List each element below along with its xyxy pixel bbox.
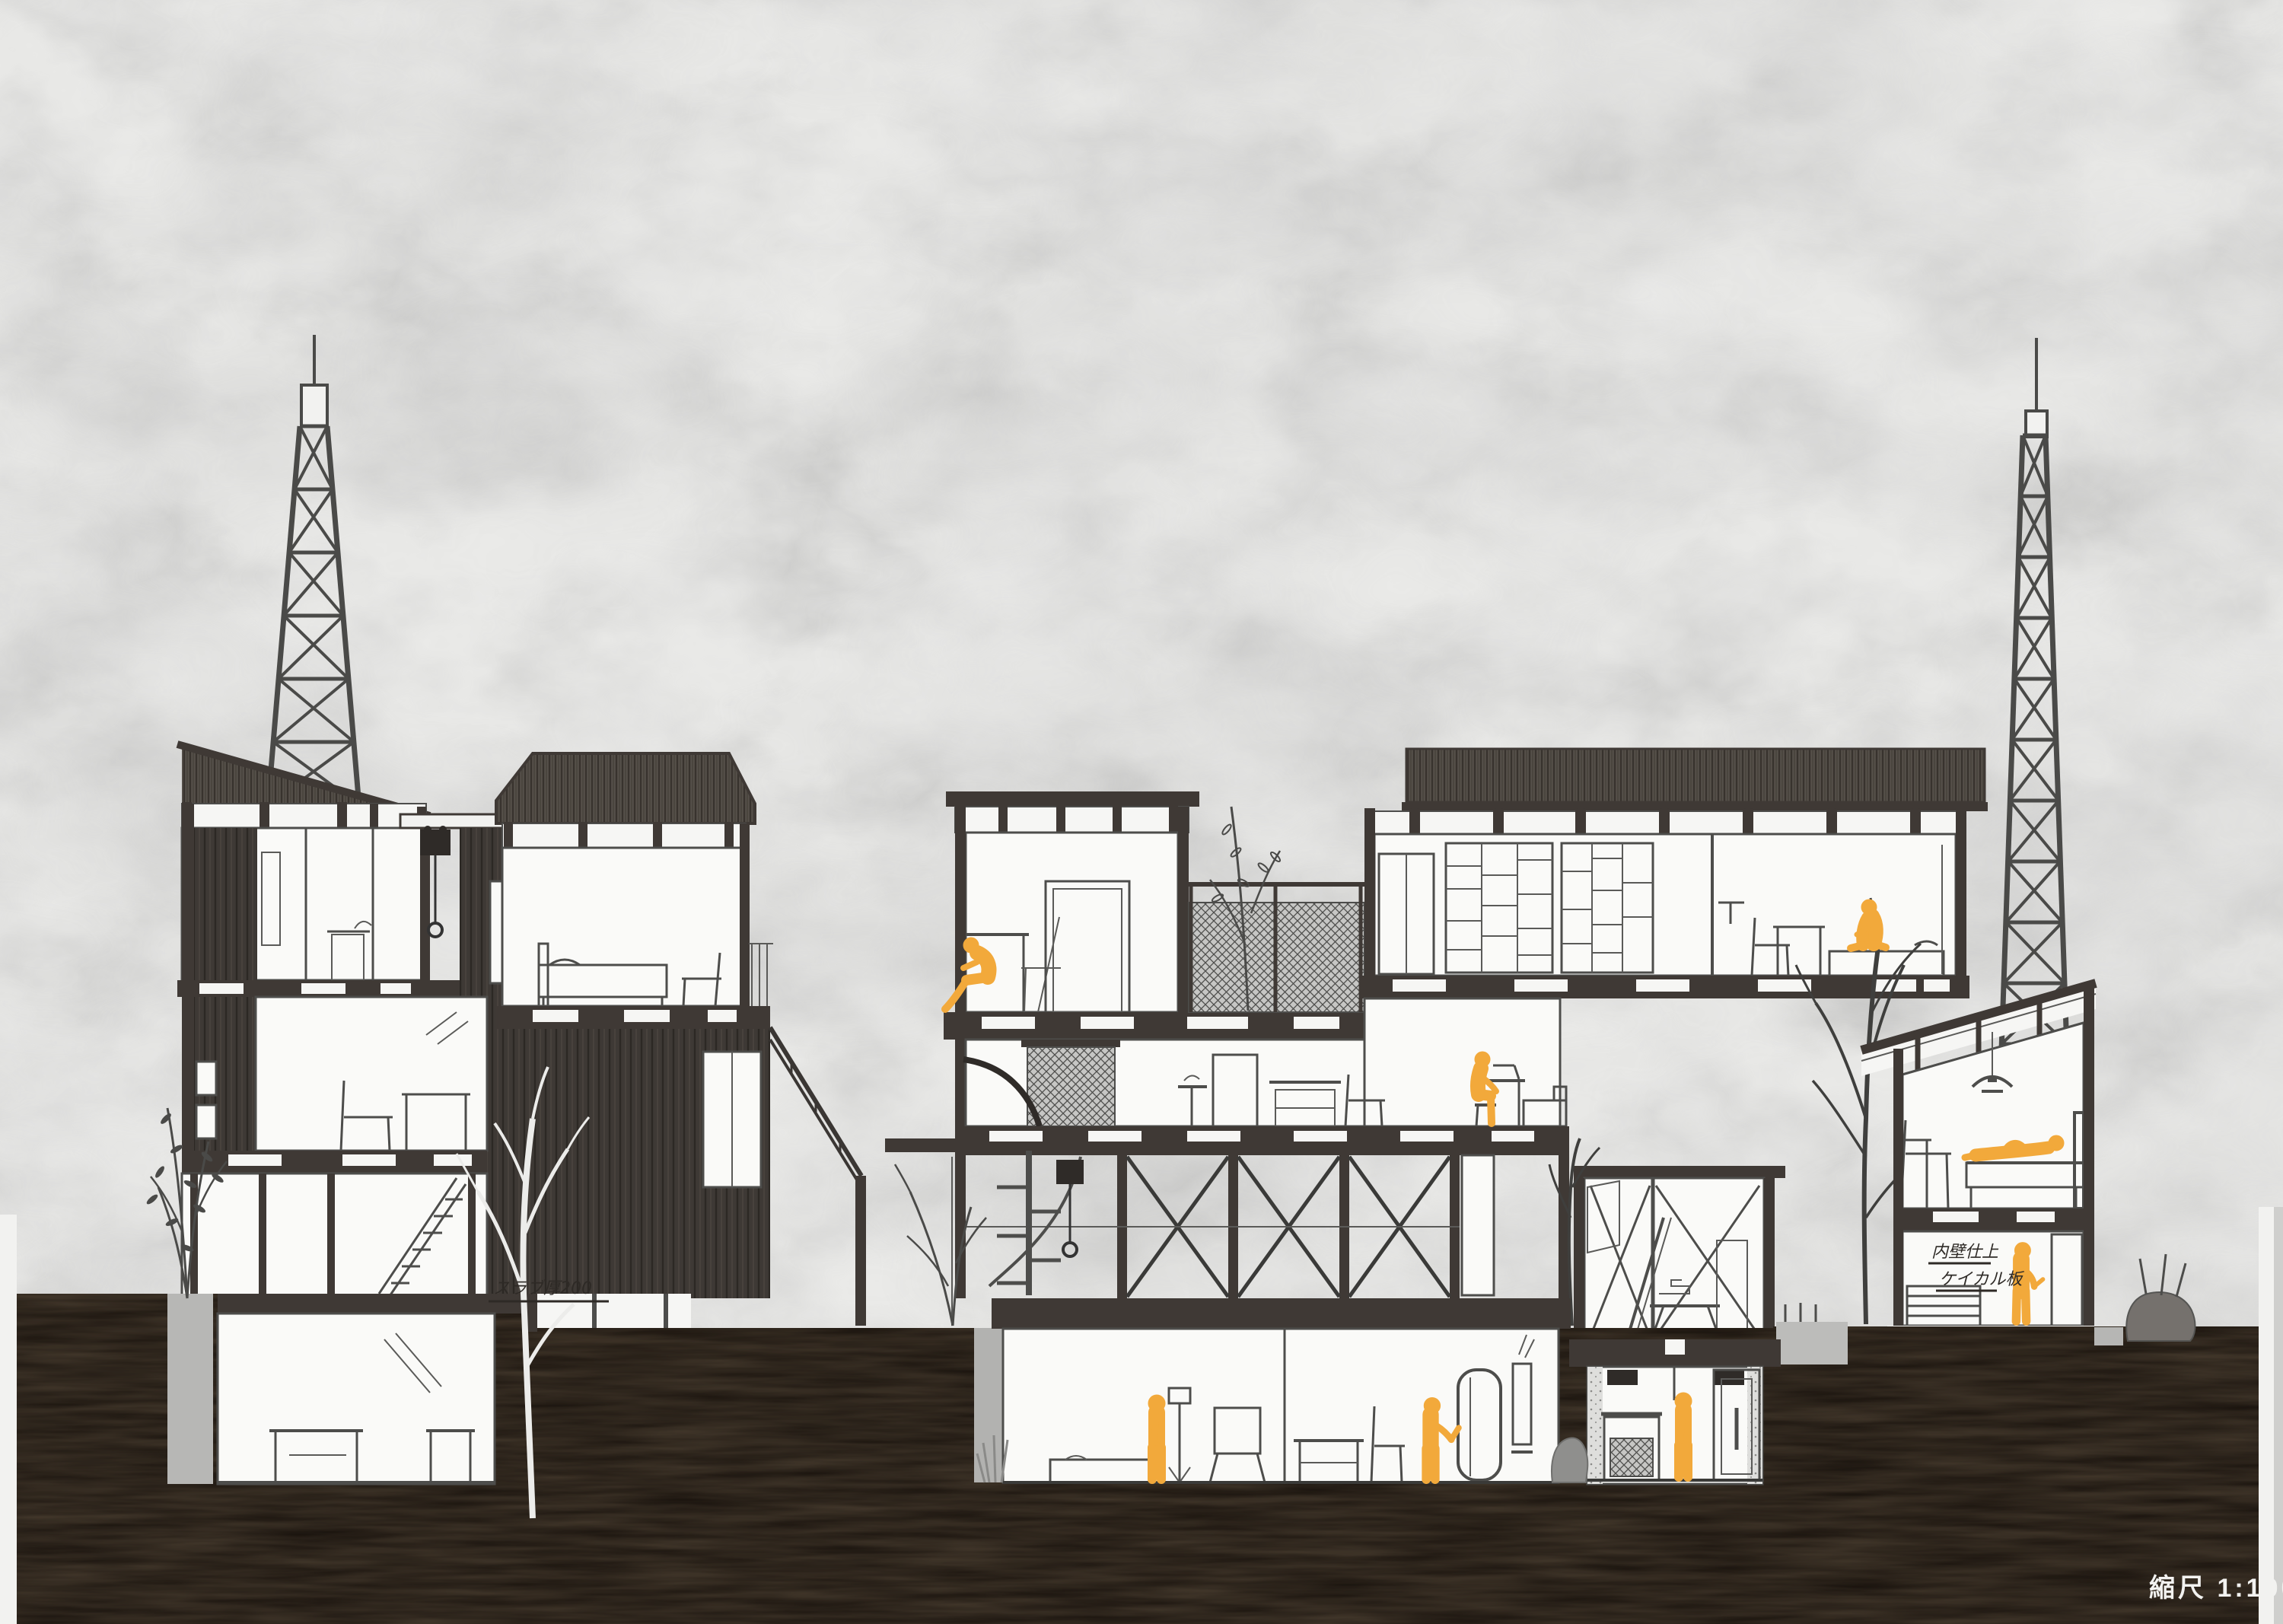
figure-standing-annex [1675, 1393, 1692, 1477]
right-left-wall [1893, 1049, 1903, 1327]
wall-finish-note-line2: ケイカル板 [1939, 1270, 2025, 1289]
left-basement [218, 1294, 537, 1484]
upper-block-left-wall [1364, 808, 1375, 998]
unitA-dark-panel [194, 828, 257, 980]
terrace-guardrail [1186, 884, 1368, 1012]
right-right-wall [2084, 983, 2094, 1327]
sliding-panel [1462, 1155, 1494, 1295]
unitB-gable-roof [496, 753, 755, 823]
left-basement-slab [218, 1294, 537, 1314]
middle-basement [992, 1298, 1571, 1482]
hoist-block [420, 830, 451, 855]
wall-box-2 [196, 1105, 216, 1138]
figure-standing-workshop [1148, 1395, 1165, 1479]
middle-left-wall [955, 794, 966, 1298]
wall-box-1 [196, 1062, 216, 1095]
scale-label: 縮尺 1:100 [2149, 1573, 2283, 1603]
mid-level-right [1364, 998, 1560, 1126]
right-floor-slab [1893, 1208, 2094, 1231]
upper-block-corrugated-roof [1406, 749, 1985, 802]
middle-basement-slab [992, 1298, 1571, 1329]
upper-block-right-wall [1956, 808, 1966, 998]
tower-unit-studio [966, 833, 1178, 1012]
cantilever-beam [885, 1138, 957, 1152]
unitC-study [256, 997, 487, 1151]
hatched-sliding-panel [1027, 1047, 1115, 1126]
right-curb [2094, 1327, 2123, 1345]
unitB-right-wall [740, 823, 750, 1006]
wall-finish-note-line1: 内壁仕上 [1931, 1243, 1999, 1262]
mid-floor-slab [955, 1126, 1569, 1155]
unitB-clerestory [502, 823, 746, 848]
annex-roof [1574, 1166, 1785, 1178]
architectural-section-sheet: スラブ厚200 内壁仕上 ケイカル板 縮尺 1:100 [0, 0, 2283, 1624]
annex-upper-room [1584, 1178, 1764, 1339]
unitA-clerestory [182, 804, 426, 828]
upper-block-fascia [1402, 802, 1988, 811]
slab-thickness-note: スラブ厚200 [493, 1279, 592, 1298]
left-planter-well [167, 1294, 213, 1484]
tower-unit-right-wall [1178, 807, 1189, 1012]
tower-unit-roof [946, 791, 1199, 807]
annex-side-terrace [1776, 1322, 1848, 1364]
unitA-left-pier [182, 804, 194, 980]
